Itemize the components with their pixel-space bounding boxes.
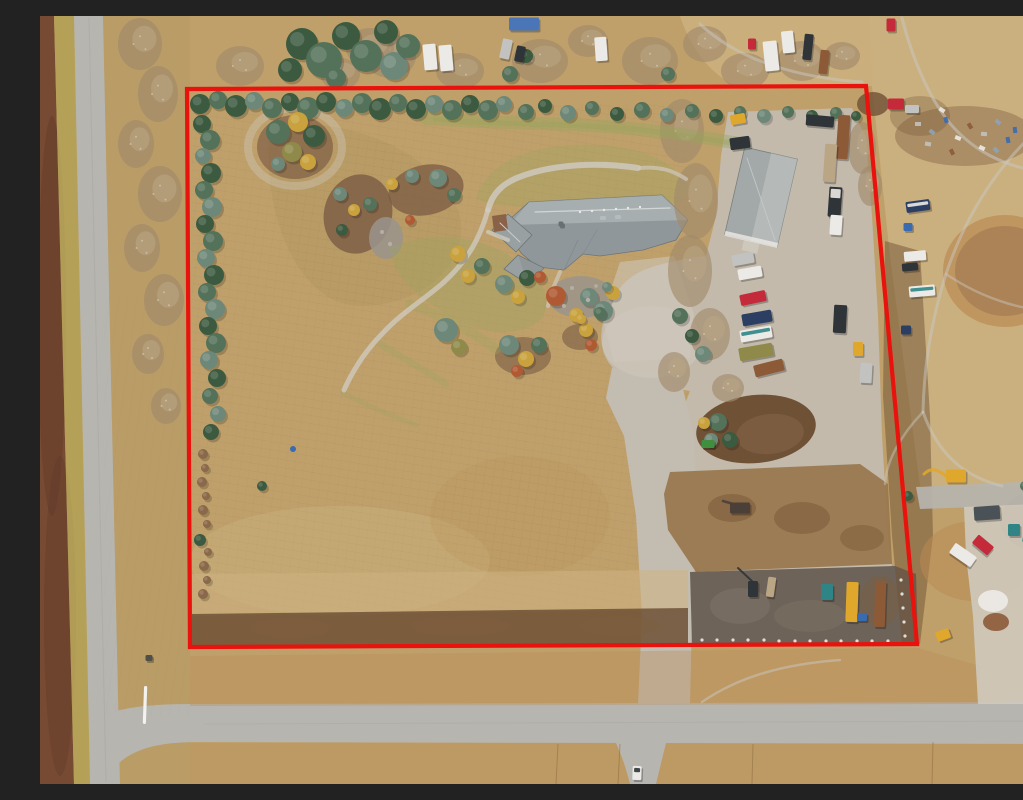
- tarp-structure-body: [509, 18, 539, 31]
- tree-highlight: [582, 290, 590, 298]
- atv: [887, 19, 898, 34]
- bottom-brush-mottle-1: [250, 618, 330, 638]
- bare-tree-highlight: [157, 282, 179, 308]
- tree-highlight: [497, 277, 505, 285]
- crane-body: [748, 581, 758, 597]
- excavator-body: [1008, 524, 1020, 536]
- tarp-structure: [509, 18, 541, 33]
- chimney-body: [559, 222, 564, 227]
- tree-highlight: [476, 260, 483, 267]
- tree-highlight: [290, 32, 304, 46]
- container-body: [974, 505, 1001, 521]
- tree-highlight: [549, 289, 558, 298]
- skylight: [600, 216, 606, 220]
- branch-speckle: [750, 74, 752, 76]
- roof-vent: [591, 210, 593, 212]
- trailer: [874, 581, 888, 629]
- tree-highlight: [207, 268, 216, 277]
- excavator-body: [821, 584, 833, 600]
- tree-highlight: [291, 115, 300, 124]
- tree-highlight: [587, 103, 593, 109]
- tree-highlight: [437, 321, 448, 332]
- bare-tree-cluster: [721, 53, 769, 89]
- fence-post: [900, 592, 903, 595]
- bin: [857, 613, 869, 623]
- tree-highlight: [205, 549, 209, 553]
- tree-highlight: [724, 434, 731, 441]
- branch-speckle: [157, 299, 159, 301]
- trailer-body: [859, 363, 872, 384]
- tree-highlight: [319, 95, 328, 104]
- bin-body: [904, 223, 913, 231]
- tree-highlight: [338, 226, 343, 231]
- corner-burn-pile: [857, 92, 889, 116]
- tree-highlight: [265, 101, 274, 110]
- tree-highlight: [337, 101, 345, 109]
- tree-highlight: [205, 426, 212, 433]
- tree-highlight: [198, 217, 206, 225]
- tree-highlight: [193, 97, 202, 106]
- branch-speckle: [704, 38, 706, 40]
- tree-highlight: [209, 336, 218, 345]
- tree-highlight: [852, 112, 857, 117]
- fence-post: [777, 639, 780, 642]
- branch-speckle: [140, 148, 142, 150]
- truck: [729, 135, 752, 152]
- bare-tree-highlight: [530, 46, 561, 68]
- crane-truck-body: [845, 582, 858, 622]
- junk-item: [1013, 127, 1018, 133]
- branch-speckle: [592, 43, 594, 45]
- tree-highlight: [662, 110, 668, 116]
- branch-speckle: [145, 48, 147, 50]
- tree-highlight: [336, 26, 349, 39]
- bare-tree-highlight: [132, 26, 156, 52]
- excavator: [946, 470, 968, 485]
- tree-highlight: [711, 111, 717, 117]
- branch-speckle: [701, 208, 703, 210]
- tree-highlight: [520, 106, 527, 113]
- bare-tree-highlight: [688, 174, 712, 212]
- rock: [380, 230, 384, 234]
- car: [904, 250, 928, 264]
- tree-highlight: [281, 61, 292, 72]
- branch-speckle: [794, 60, 796, 62]
- branch-speckle: [865, 185, 867, 187]
- truck-body: [833, 305, 847, 334]
- tree-highlight: [204, 390, 211, 397]
- bare-tree-cluster: [138, 166, 182, 222]
- branch-speckle: [727, 383, 729, 385]
- branch-speckle: [139, 35, 141, 37]
- tree-highlight: [354, 44, 368, 58]
- tree-highlight: [258, 482, 263, 487]
- flatbed-truck: [823, 144, 839, 185]
- bare-tree-highlight: [640, 44, 671, 68]
- rv: [781, 30, 797, 55]
- white-tarp-pile: [978, 590, 1008, 612]
- object-body: [146, 655, 153, 661]
- bin-body: [901, 326, 911, 335]
- fence-post: [901, 606, 904, 609]
- tree-highlight: [311, 47, 327, 63]
- tree-highlight: [406, 216, 411, 221]
- fence-post: [715, 638, 718, 641]
- tree-highlight: [577, 315, 582, 320]
- bare-tree-cluster: [683, 26, 727, 62]
- tree-highlight: [306, 128, 316, 138]
- branch-speckle: [135, 136, 137, 138]
- branch-speckle: [688, 200, 690, 202]
- tree-highlight: [784, 108, 789, 113]
- tree-highlight: [198, 478, 203, 483]
- tree-highlight: [377, 23, 388, 34]
- tree-highlight: [196, 536, 201, 541]
- tree-highlight: [700, 419, 705, 424]
- tree-highlight: [300, 100, 310, 110]
- tree-highlight: [200, 562, 205, 567]
- fence-post: [855, 639, 858, 642]
- trailer-body: [422, 43, 437, 70]
- branch-speckle: [581, 40, 583, 42]
- tree-highlight: [407, 171, 413, 177]
- bare-tree-cluster: [132, 334, 164, 374]
- machine-body: [888, 99, 904, 110]
- rv: [594, 37, 609, 64]
- truck-cab: [830, 189, 841, 199]
- tree-highlight: [587, 341, 592, 346]
- tree-highlight: [636, 104, 643, 111]
- branch-speckle: [689, 259, 691, 261]
- branch-speckle: [165, 199, 167, 201]
- branch-speckle: [846, 58, 848, 60]
- fence-post: [700, 638, 703, 641]
- branch-speckle: [245, 69, 247, 71]
- branch-speckle: [841, 51, 843, 53]
- tree-highlight: [687, 331, 693, 337]
- branch-speckle: [836, 55, 838, 57]
- tree-highlight: [603, 283, 608, 288]
- branch-speckle: [677, 375, 679, 377]
- tree-highlight: [202, 465, 206, 469]
- tree-highlight: [533, 339, 540, 346]
- branch-speckle: [161, 405, 163, 407]
- pad-mottle-2: [774, 600, 846, 632]
- tree-highlight: [202, 353, 210, 361]
- rv-body: [781, 30, 795, 53]
- bare-tree-cluster: [668, 235, 712, 307]
- branch-speckle: [152, 193, 154, 195]
- bare-tree-cluster: [658, 352, 690, 392]
- branch-speckle: [697, 43, 699, 45]
- branch-speckle: [232, 65, 234, 67]
- tree-highlight: [384, 56, 397, 69]
- bare-tree-highlight: [452, 58, 478, 76]
- junk-item: [981, 132, 987, 137]
- fence-post: [899, 578, 902, 581]
- branch-speckle: [731, 390, 733, 392]
- tree-highlight: [211, 93, 219, 101]
- tree-highlight: [536, 273, 541, 278]
- tree-highlight: [571, 310, 577, 316]
- tree-highlight: [206, 234, 215, 243]
- tree-highlight: [498, 98, 505, 105]
- tree-highlight: [391, 96, 399, 104]
- branch-speckle: [157, 85, 159, 87]
- branch-speckle: [744, 65, 746, 67]
- branch-speckle: [168, 304, 170, 306]
- excavator: [821, 584, 835, 602]
- roof-vent: [579, 211, 581, 213]
- junk-item: [915, 122, 921, 126]
- tree-highlight: [350, 206, 355, 211]
- branch-speckle: [587, 35, 589, 37]
- tree-highlight: [365, 199, 371, 205]
- tree-highlight: [283, 95, 291, 103]
- outside-bottom-tint: [190, 648, 980, 706]
- branch-speckle: [151, 93, 153, 95]
- roof-vent: [603, 209, 605, 211]
- branch-speckle: [162, 99, 164, 101]
- branch-speckle: [737, 70, 739, 72]
- bare-tree-cluster: [712, 374, 744, 402]
- tree-highlight: [562, 107, 569, 114]
- trailer-body: [438, 44, 453, 71]
- tree-highlight: [449, 190, 455, 196]
- dirt-mound-3: [840, 525, 884, 551]
- tree-highlight: [203, 493, 207, 497]
- car-body: [904, 250, 927, 262]
- branch-speckle: [641, 60, 643, 62]
- tree-highlight: [663, 69, 669, 75]
- bare-tree-cluster: [216, 46, 264, 86]
- branch-speckle: [239, 59, 241, 61]
- truck: [833, 305, 849, 336]
- bare-tree-highlight: [836, 46, 856, 60]
- branch-speckle: [136, 247, 138, 249]
- bin-body: [857, 613, 867, 621]
- bare-tree-highlight: [668, 358, 686, 378]
- bottom-brush-mottle-3: [580, 616, 660, 636]
- branch-speckle: [151, 357, 153, 359]
- branch-speckle: [165, 400, 167, 402]
- branch-speckle: [722, 387, 724, 389]
- branch-speckle: [709, 325, 711, 327]
- trailer: [438, 44, 455, 73]
- fence-post: [902, 620, 905, 623]
- tree-highlight: [204, 577, 208, 581]
- tree-highlight: [463, 271, 469, 277]
- bare-tree-cluster: [144, 274, 184, 326]
- branch-speckle: [807, 64, 809, 66]
- tree-highlight: [687, 106, 693, 112]
- tree-highlight: [199, 590, 204, 595]
- blue-barrel: [290, 446, 296, 452]
- tree-highlight: [372, 101, 382, 111]
- tree-highlight: [335, 189, 341, 195]
- fence-post: [762, 638, 765, 641]
- branch-speckle: [673, 365, 675, 367]
- tree-highlight: [195, 117, 203, 125]
- tree-highlight: [431, 171, 439, 179]
- aerial-property-photo: [40, 16, 1023, 784]
- grass-below-road-tint: [190, 743, 1023, 784]
- excavator: [730, 503, 752, 516]
- branch-speckle: [147, 347, 149, 349]
- truck: [827, 187, 844, 220]
- tree-highlight: [199, 450, 204, 455]
- bare-tree-cluster: [118, 18, 162, 70]
- tree-highlight: [612, 109, 618, 115]
- tractor-body: [702, 440, 715, 448]
- branch-speckle: [130, 143, 132, 145]
- dirt-mound-2: [774, 502, 830, 534]
- tree-highlight: [520, 353, 527, 360]
- branch-speckle: [546, 64, 548, 66]
- fence-post: [839, 639, 842, 642]
- excavator-body: [730, 503, 750, 514]
- van: [829, 215, 844, 238]
- fence-post: [793, 639, 796, 642]
- tree-highlight: [200, 285, 208, 293]
- tree-highlight: [197, 183, 205, 191]
- bare-tree-highlight: [722, 378, 740, 392]
- tree-highlight: [269, 123, 280, 134]
- branch-speckle: [459, 65, 461, 67]
- fence-post: [903, 634, 906, 637]
- bare-tree-highlight: [152, 174, 176, 202]
- tree-highlight: [302, 156, 309, 163]
- tree-highlight: [463, 97, 471, 105]
- bare-tree-highlight: [151, 74, 173, 102]
- branch-speckle: [857, 147, 859, 149]
- tree-highlight: [513, 367, 518, 372]
- branch-speckle: [146, 252, 148, 254]
- branch-speckle: [869, 179, 871, 181]
- roof-vent: [627, 207, 629, 209]
- tree-highlight: [759, 111, 765, 117]
- branch-speckle: [465, 74, 467, 76]
- red-dirt-mound: [983, 613, 1009, 631]
- tree-highlight: [247, 94, 255, 102]
- branch-speckle: [861, 139, 863, 141]
- tree-highlight: [481, 103, 490, 112]
- machine: [888, 99, 906, 112]
- excavator-body: [946, 470, 966, 483]
- tree-highlight: [212, 408, 219, 415]
- tree-highlight: [203, 133, 212, 142]
- tree-highlight: [399, 37, 410, 48]
- tree-highlight: [228, 98, 238, 108]
- tree-highlight: [504, 68, 511, 75]
- trailer: [859, 363, 874, 386]
- tree-highlight: [697, 348, 704, 355]
- fence-post: [824, 639, 827, 642]
- tree-highlight: [540, 101, 546, 107]
- branch-speckle: [682, 270, 684, 272]
- fence-post: [731, 638, 734, 641]
- car: [902, 262, 920, 273]
- bare-tree-cluster: [138, 66, 178, 122]
- car-on-road-cab: [634, 768, 640, 772]
- tree-highlight: [409, 102, 418, 111]
- tree-highlight: [355, 96, 364, 105]
- tree-highlight: [388, 180, 393, 185]
- skylight: [615, 215, 621, 219]
- bin: [904, 223, 915, 233]
- bare-tree-highlight: [161, 393, 178, 411]
- branch-speckle: [695, 189, 697, 191]
- tree-highlight: [513, 292, 519, 298]
- bare-tree-highlight: [703, 316, 725, 342]
- rock: [570, 286, 574, 290]
- pad-mottle-1: [710, 588, 770, 624]
- branch-speckle: [539, 53, 541, 55]
- tree-highlight: [210, 371, 218, 379]
- machine-body: [853, 342, 863, 356]
- tree-highlight: [674, 310, 681, 317]
- aerial-photo-canvas: [40, 16, 1023, 784]
- container: [974, 505, 1003, 523]
- rv-body: [594, 37, 608, 62]
- tractor: [702, 440, 717, 450]
- tree-highlight: [736, 108, 741, 113]
- branch-speckle: [656, 65, 658, 67]
- tree-highlight: [285, 145, 294, 154]
- trailer: [422, 43, 439, 72]
- skylight-body: [600, 216, 606, 220]
- rock: [594, 284, 598, 288]
- rock: [562, 304, 566, 308]
- tree-highlight: [427, 97, 435, 105]
- roof-vent: [615, 208, 617, 210]
- tree-highlight: [445, 103, 454, 112]
- branch-speckle: [142, 353, 144, 355]
- branch-speckle: [865, 152, 867, 154]
- branch-speckle: [681, 120, 683, 122]
- crane: [748, 581, 760, 599]
- tree-highlight: [205, 200, 214, 209]
- bare-tree-cluster: [118, 120, 154, 168]
- tree-highlight: [711, 415, 719, 423]
- trailer-body: [874, 581, 887, 627]
- bare-tree-highlight: [142, 340, 160, 360]
- branch-speckle: [132, 43, 134, 45]
- branch-speckle: [141, 240, 143, 242]
- tree-highlight: [204, 521, 208, 525]
- tree-highlight: [832, 109, 837, 114]
- car-body: [902, 262, 919, 271]
- branch-speckle: [159, 185, 161, 187]
- tree-highlight: [502, 338, 511, 347]
- branch-speckle: [695, 277, 697, 279]
- branch-speckle: [169, 409, 171, 411]
- atv-body: [887, 19, 896, 32]
- branch-speckle: [703, 333, 705, 335]
- tree-highlight: [197, 150, 204, 157]
- bare-tree-highlight: [682, 246, 706, 282]
- branch-speckle: [668, 371, 670, 373]
- tree-highlight: [199, 251, 207, 259]
- machine: [853, 342, 865, 358]
- tree-highlight: [201, 319, 209, 327]
- tree-highlight: [199, 506, 204, 511]
- branch-speckle: [163, 291, 165, 293]
- roof-vent: [639, 206, 641, 208]
- tree-highlight: [521, 272, 528, 279]
- fence-post: [808, 639, 811, 642]
- car-on-road: [632, 766, 643, 782]
